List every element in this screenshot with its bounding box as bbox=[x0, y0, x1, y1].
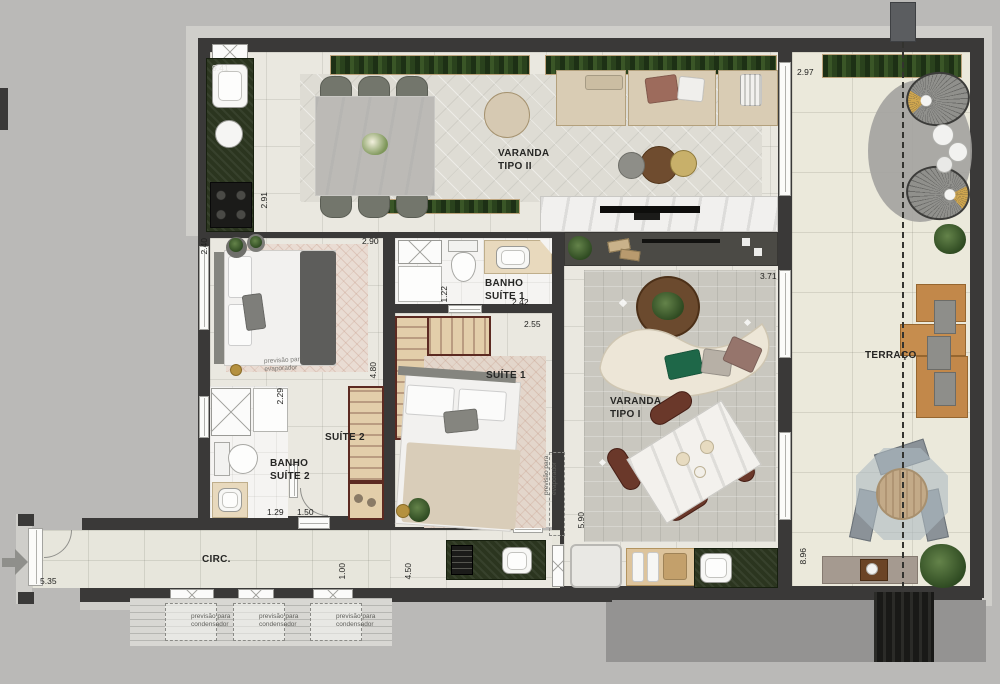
dining2-flowers bbox=[362, 133, 388, 155]
banho1-toilet-tank bbox=[448, 240, 478, 252]
suite2-door bbox=[298, 517, 330, 529]
terrace-side-table bbox=[936, 156, 953, 173]
sofa-cushion bbox=[585, 75, 623, 90]
suite1-throw-pillow bbox=[443, 408, 479, 433]
suite2-plant bbox=[229, 238, 243, 252]
dimension-label: 2.90 bbox=[362, 237, 379, 246]
suite1-closet-horizontal bbox=[427, 316, 491, 356]
window-hall-living bbox=[552, 545, 564, 587]
daybed-pillow bbox=[632, 552, 644, 582]
dimension-label: 4.80 bbox=[369, 362, 378, 379]
dining1-plate bbox=[676, 452, 690, 466]
planter-varanda2-left bbox=[330, 55, 530, 75]
dining1-plate bbox=[694, 466, 706, 478]
wall-entry-bottom bbox=[18, 592, 34, 604]
entry-arrow-icon bbox=[2, 548, 30, 576]
dimension-label: 2.40 bbox=[200, 238, 209, 255]
console-plant bbox=[568, 236, 592, 260]
banho1-sink bbox=[496, 246, 530, 269]
console-decor bbox=[742, 238, 750, 246]
dining1-plate bbox=[700, 440, 714, 454]
wine-fridge bbox=[451, 545, 473, 575]
suite1-hvac-note: previsão paraevaporador bbox=[543, 452, 569, 538]
condenser-box-1: previsão paracondensador bbox=[165, 603, 217, 641]
dimension-label: 1.50 bbox=[297, 508, 314, 517]
banho2-sink bbox=[218, 488, 242, 512]
dimension-label: 8.96 bbox=[799, 548, 808, 565]
wall-entry-top bbox=[18, 514, 34, 526]
window-living-right-2 bbox=[779, 432, 791, 520]
suite1-lamp bbox=[396, 504, 410, 518]
suite2-headboard bbox=[214, 252, 224, 364]
terrace-sofa-cushion bbox=[934, 372, 956, 406]
suite2-closet-shoes bbox=[354, 494, 363, 503]
daybed-cushion bbox=[663, 553, 687, 580]
dimension-label: 4.50 bbox=[404, 563, 413, 580]
room-label-varanda1: VARANDATIPO I bbox=[572, 396, 648, 409]
utility-shaft-block bbox=[874, 592, 934, 662]
suite2-closet-shoes bbox=[367, 498, 376, 507]
sofa-pillow-stripe bbox=[740, 74, 762, 106]
gourmet-sink-hall bbox=[502, 547, 532, 574]
dimension-label: 2.91 bbox=[260, 192, 269, 209]
dimension-label: 1.22 bbox=[440, 286, 449, 303]
kitchen-round-sink bbox=[215, 120, 243, 148]
terrace-plant-bottom bbox=[920, 544, 966, 588]
tv bbox=[600, 206, 700, 213]
banho1-door bbox=[448, 305, 482, 313]
window-banho2-left bbox=[199, 396, 209, 438]
wall-suite-divider bbox=[383, 232, 395, 530]
terrace-sofa-cushion bbox=[927, 336, 951, 370]
terrace-plate bbox=[866, 563, 878, 575]
banho2-shower bbox=[211, 388, 251, 436]
suite2-hvac-note: previsão paraevaporador bbox=[234, 356, 294, 367]
banho1-vanity bbox=[398, 266, 442, 302]
dimension-label: 2.42 bbox=[512, 298, 529, 307]
planter-varanda2-bottom bbox=[370, 199, 520, 214]
coffee-table-plant bbox=[652, 292, 684, 320]
window-suite2-left bbox=[199, 246, 209, 330]
condenser-box-3: previsão paracondensador bbox=[310, 603, 362, 641]
room-label-varanda2: VARANDATIPO II bbox=[442, 148, 554, 161]
wall-left-sliver bbox=[0, 88, 8, 130]
terrace-sofa-cushion bbox=[934, 300, 956, 334]
dimension-label: 2.55 bbox=[524, 320, 541, 329]
console-decor bbox=[754, 248, 762, 256]
sofa-pillow-brown bbox=[644, 74, 679, 104]
room-label-banho1: BANHOSUÍTE 1 bbox=[448, 278, 522, 291]
window-varanda2-terrace bbox=[779, 62, 791, 196]
terrace-plant-top bbox=[934, 224, 966, 254]
dimension-label: 9.41 bbox=[212, 64, 229, 73]
tv-mount bbox=[634, 213, 660, 220]
kitchen-cooktop bbox=[210, 182, 252, 228]
console-fireplace bbox=[642, 239, 720, 243]
suite2-pillow bbox=[228, 256, 252, 298]
banho1-shower bbox=[398, 240, 442, 264]
condenser-box-2: previsão paracondensador bbox=[233, 603, 285, 641]
coffee-table-gold bbox=[670, 150, 697, 177]
boundary-post bbox=[890, 2, 916, 42]
dimension-label: 5.35 bbox=[40, 577, 57, 586]
wall-terrace-right bbox=[970, 38, 984, 598]
wall-circ-top-left bbox=[82, 518, 198, 530]
gourmet-sink-living bbox=[700, 553, 732, 583]
dimension-label: 5.90 bbox=[577, 512, 586, 529]
suite2-closet-lower bbox=[348, 482, 384, 520]
lounge-armchair bbox=[484, 92, 530, 138]
suite1-plant bbox=[408, 498, 430, 522]
dimension-label: 2.29 bbox=[276, 388, 285, 405]
sofa-pillow-white bbox=[677, 76, 705, 103]
terrace-side-table bbox=[932, 124, 954, 146]
coffee-table-gray bbox=[618, 152, 645, 179]
dimension-label: 2.97 bbox=[797, 68, 814, 77]
dimension-label: 1.00 bbox=[338, 563, 347, 580]
suite2-plant bbox=[250, 236, 262, 248]
suite2-blanket bbox=[300, 251, 336, 365]
dimension-label: 3.71 bbox=[760, 272, 777, 281]
daybed-pillow bbox=[647, 552, 659, 582]
room-label-banho2: BANHOSUÍTE 2 bbox=[238, 458, 302, 471]
wall-top bbox=[198, 38, 984, 52]
living-armchair bbox=[570, 544, 622, 588]
floor-plan: previsão paraevaporador previsão paraeva… bbox=[0, 0, 1000, 684]
dimension-label: 1.29 bbox=[267, 508, 284, 517]
